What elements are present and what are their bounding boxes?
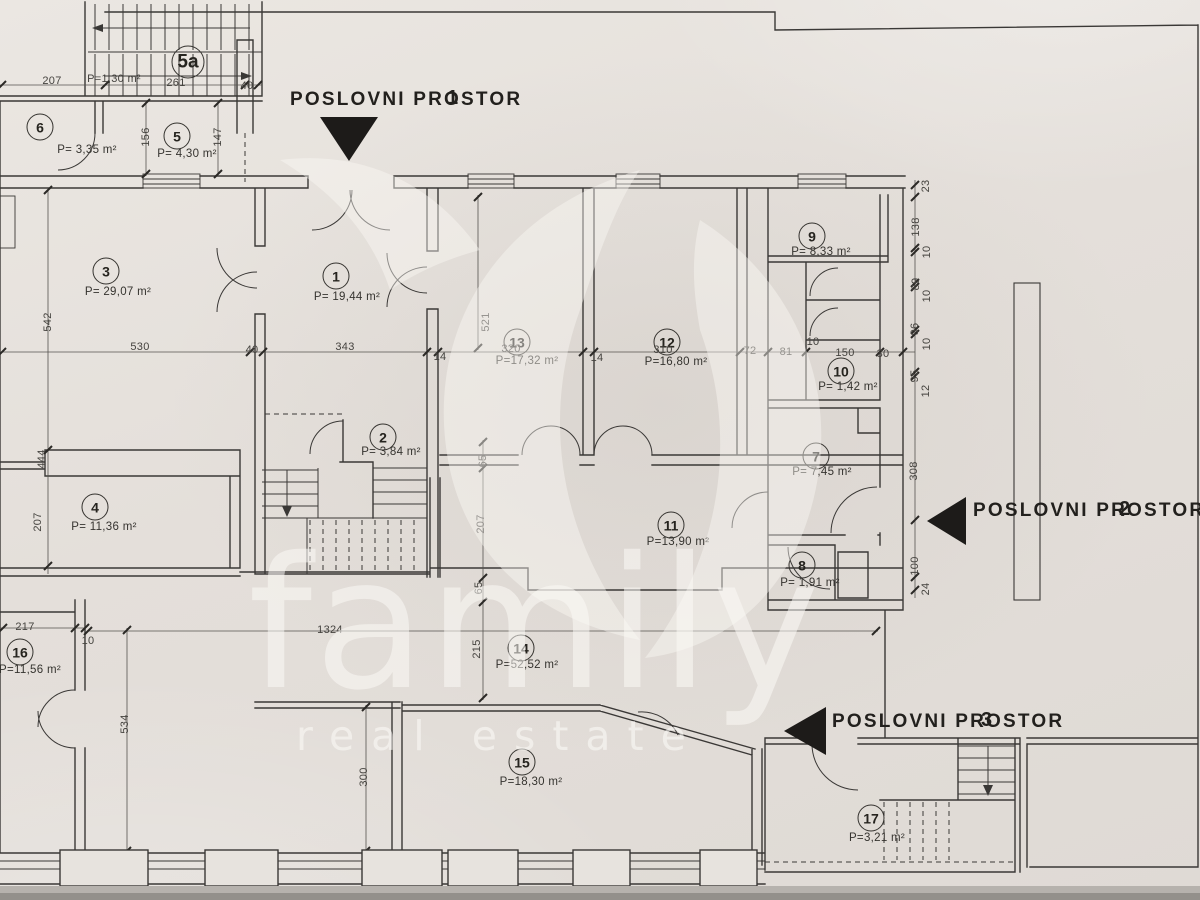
annotation-text: POSLOVNI PROSTOR [290, 89, 522, 110]
dim-label-16: 81 [780, 346, 793, 358]
dim-label-30: 100 [909, 556, 921, 575]
dim-label-41: 1324 [317, 624, 343, 636]
dim-label-14: 310 [653, 344, 672, 356]
dim-label-32: 65 [477, 455, 489, 468]
room-circle-5: 5 [164, 123, 191, 150]
dim-label-17: 10 [807, 336, 820, 348]
dim-label-39: 10 [82, 635, 95, 647]
room-area-2: P= 3,84 m² [361, 446, 421, 458]
dim-label-28: 12 [920, 385, 932, 398]
labels-layer: 5a6P= 3,35 m²5P= 4,30 m²3P= 29,07 m²1P= … [0, 0, 1200, 900]
dim-label-36: 444 [36, 449, 48, 468]
dim-label-20: 23 [920, 180, 932, 193]
dim-label-33: 207 [475, 514, 487, 533]
dim-label-25: 96 [909, 323, 921, 336]
dim-label-10: 14 [434, 351, 447, 363]
dim-label-22: 10 [921, 246, 933, 259]
floorplan-page: 5a6P= 3,35 m²5P= 4,30 m²3P= 29,07 m²1P= … [0, 0, 1200, 900]
dim-label-9: 343 [335, 341, 354, 353]
annotation-number: 2 [1119, 498, 1132, 521]
room-area-7: P= 7,45 m² [792, 466, 852, 478]
dim-label-38: 217 [15, 621, 34, 633]
dim-label-15: 72 [744, 345, 757, 357]
dim-label-5: 147 [212, 127, 224, 146]
room-area-16: P=11,56 m² [0, 664, 61, 676]
dim-label-1: 261 [166, 77, 185, 89]
room-area-5: P= 4,30 m² [157, 148, 217, 160]
room-area-13: P=17,32 m² [496, 355, 559, 367]
dim-label-37: 207 [32, 512, 44, 531]
room-circle-17: 17 [858, 805, 885, 832]
dim-label-8: 40 [246, 344, 259, 356]
room-area-10: P= 1,42 m² [818, 381, 878, 393]
dim-label-11: 521 [480, 312, 492, 331]
room-area-6: P= 3,35 m² [57, 144, 117, 156]
room-area-17: P=3,21 m² [849, 832, 905, 844]
room-area-8: P= 1,91 m² [780, 577, 840, 589]
room-area-14: P=52,52 m² [496, 659, 559, 671]
room-area-15: P=18,30 m² [500, 776, 563, 788]
room-circle-16: 16 [7, 639, 34, 666]
annotation-number: 1 [447, 87, 460, 110]
room-circle-4: 4 [82, 494, 109, 521]
room-circle-1: 1 [323, 263, 350, 290]
room-circle-5a: 5a [172, 46, 205, 79]
room-area-4: P= 11,36 m² [71, 521, 136, 533]
dim-label-6: 542 [42, 312, 54, 331]
dim-label-40: 534 [119, 714, 131, 733]
room-circle-15: 15 [509, 749, 536, 776]
annotation-text: POSLOVNI PROSTOR [973, 500, 1200, 521]
dim-label-29: 308 [908, 461, 920, 480]
annotation-number: 3 [981, 709, 994, 732]
room-circle-6: 6 [27, 114, 54, 141]
dim-label-2: 40 [241, 80, 254, 92]
dim-label-7: 530 [130, 341, 149, 353]
dim-label-3: P=1,30 m² [87, 73, 141, 85]
dim-label-24: 10 [921, 290, 933, 303]
dim-label-21: 138 [910, 217, 922, 236]
annotation-poslovni-prostor-3: POSLOVNI PROSTOR3 [832, 711, 1064, 733]
dim-label-34: 65 [473, 582, 485, 595]
annotation-poslovni-prostor-1: POSLOVNI PROSTOR1 [290, 89, 522, 111]
room-circle-8: 8 [789, 552, 816, 579]
room-area-12: P=16,80 m² [645, 356, 708, 368]
room-area-1: P= 19,44 m² [314, 291, 380, 303]
room-circle-14: 14 [508, 635, 535, 662]
room-circle-3: 3 [93, 258, 120, 285]
dim-label-0: 207 [42, 75, 61, 87]
dim-label-18: 150 [835, 347, 854, 359]
dim-label-19: 30 [877, 348, 890, 360]
annotation-poslovni-prostor-2: POSLOVNI PROSTOR2 [973, 500, 1200, 522]
dim-label-4: 156 [140, 127, 152, 146]
dim-label-31: 24 [920, 583, 932, 596]
room-area-3: P= 29,07 m² [85, 286, 151, 298]
dim-label-35: 215 [471, 639, 483, 658]
dim-label-23: 89 [910, 278, 922, 291]
dim-label-12: 320 [501, 343, 520, 355]
annotation-text: POSLOVNI PROSTOR [832, 711, 1064, 732]
room-area-9: P= 8,33 m² [791, 246, 851, 258]
dim-label-42: 300 [358, 767, 370, 786]
room-area-11: P=13,90 m² [647, 536, 710, 548]
dim-label-27: 95 [909, 370, 921, 383]
room-circle-11: 11 [658, 512, 685, 539]
dim-label-26: 10 [921, 338, 933, 351]
dim-label-13: 14 [591, 352, 604, 364]
